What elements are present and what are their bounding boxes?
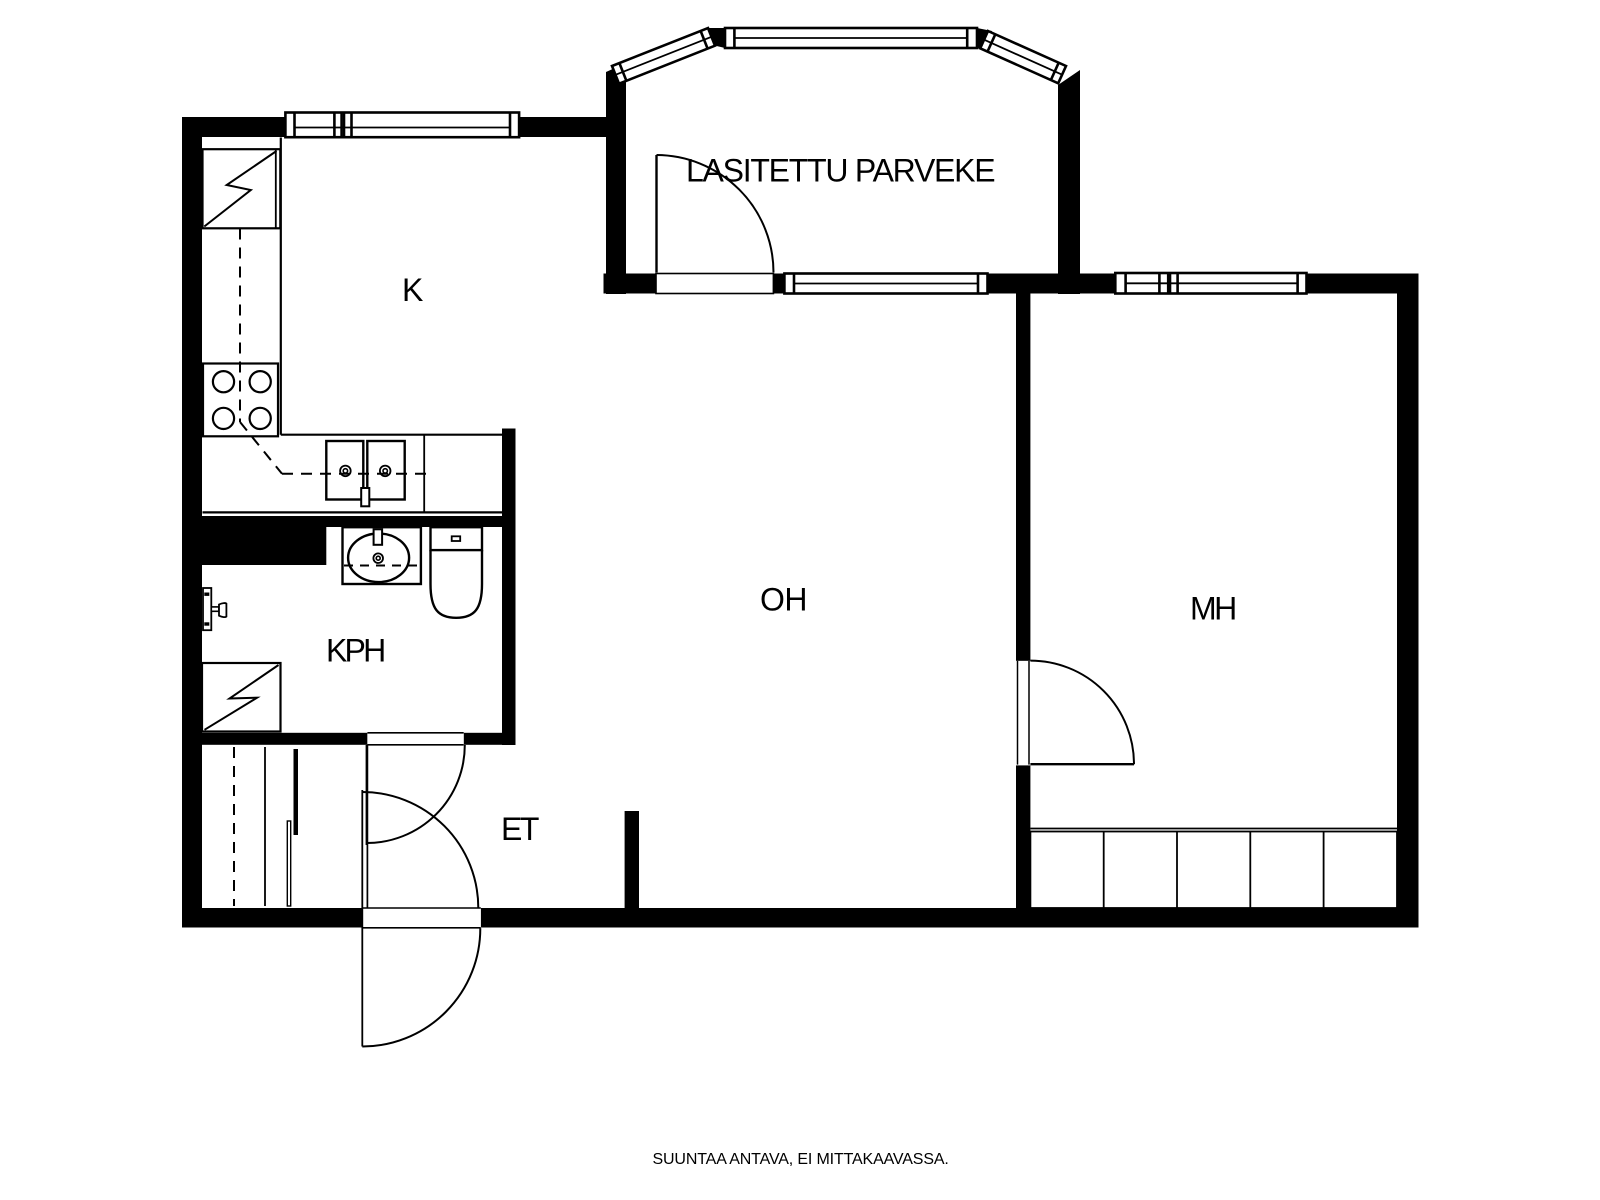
svg-text:ET: ET bbox=[501, 811, 539, 847]
svg-text:MH: MH bbox=[1190, 590, 1235, 626]
svg-text:K: K bbox=[402, 272, 423, 308]
svg-text:LASITETTU PARVEKE: LASITETTU PARVEKE bbox=[686, 153, 994, 189]
svg-text:OH: OH bbox=[760, 582, 807, 618]
svg-text:SUUNTAA ANTAVA, EI MITTAKAAVAS: SUUNTAA ANTAVA, EI MITTAKAAVASSA. bbox=[653, 1151, 949, 1168]
svg-text:KPH: KPH bbox=[326, 633, 384, 669]
